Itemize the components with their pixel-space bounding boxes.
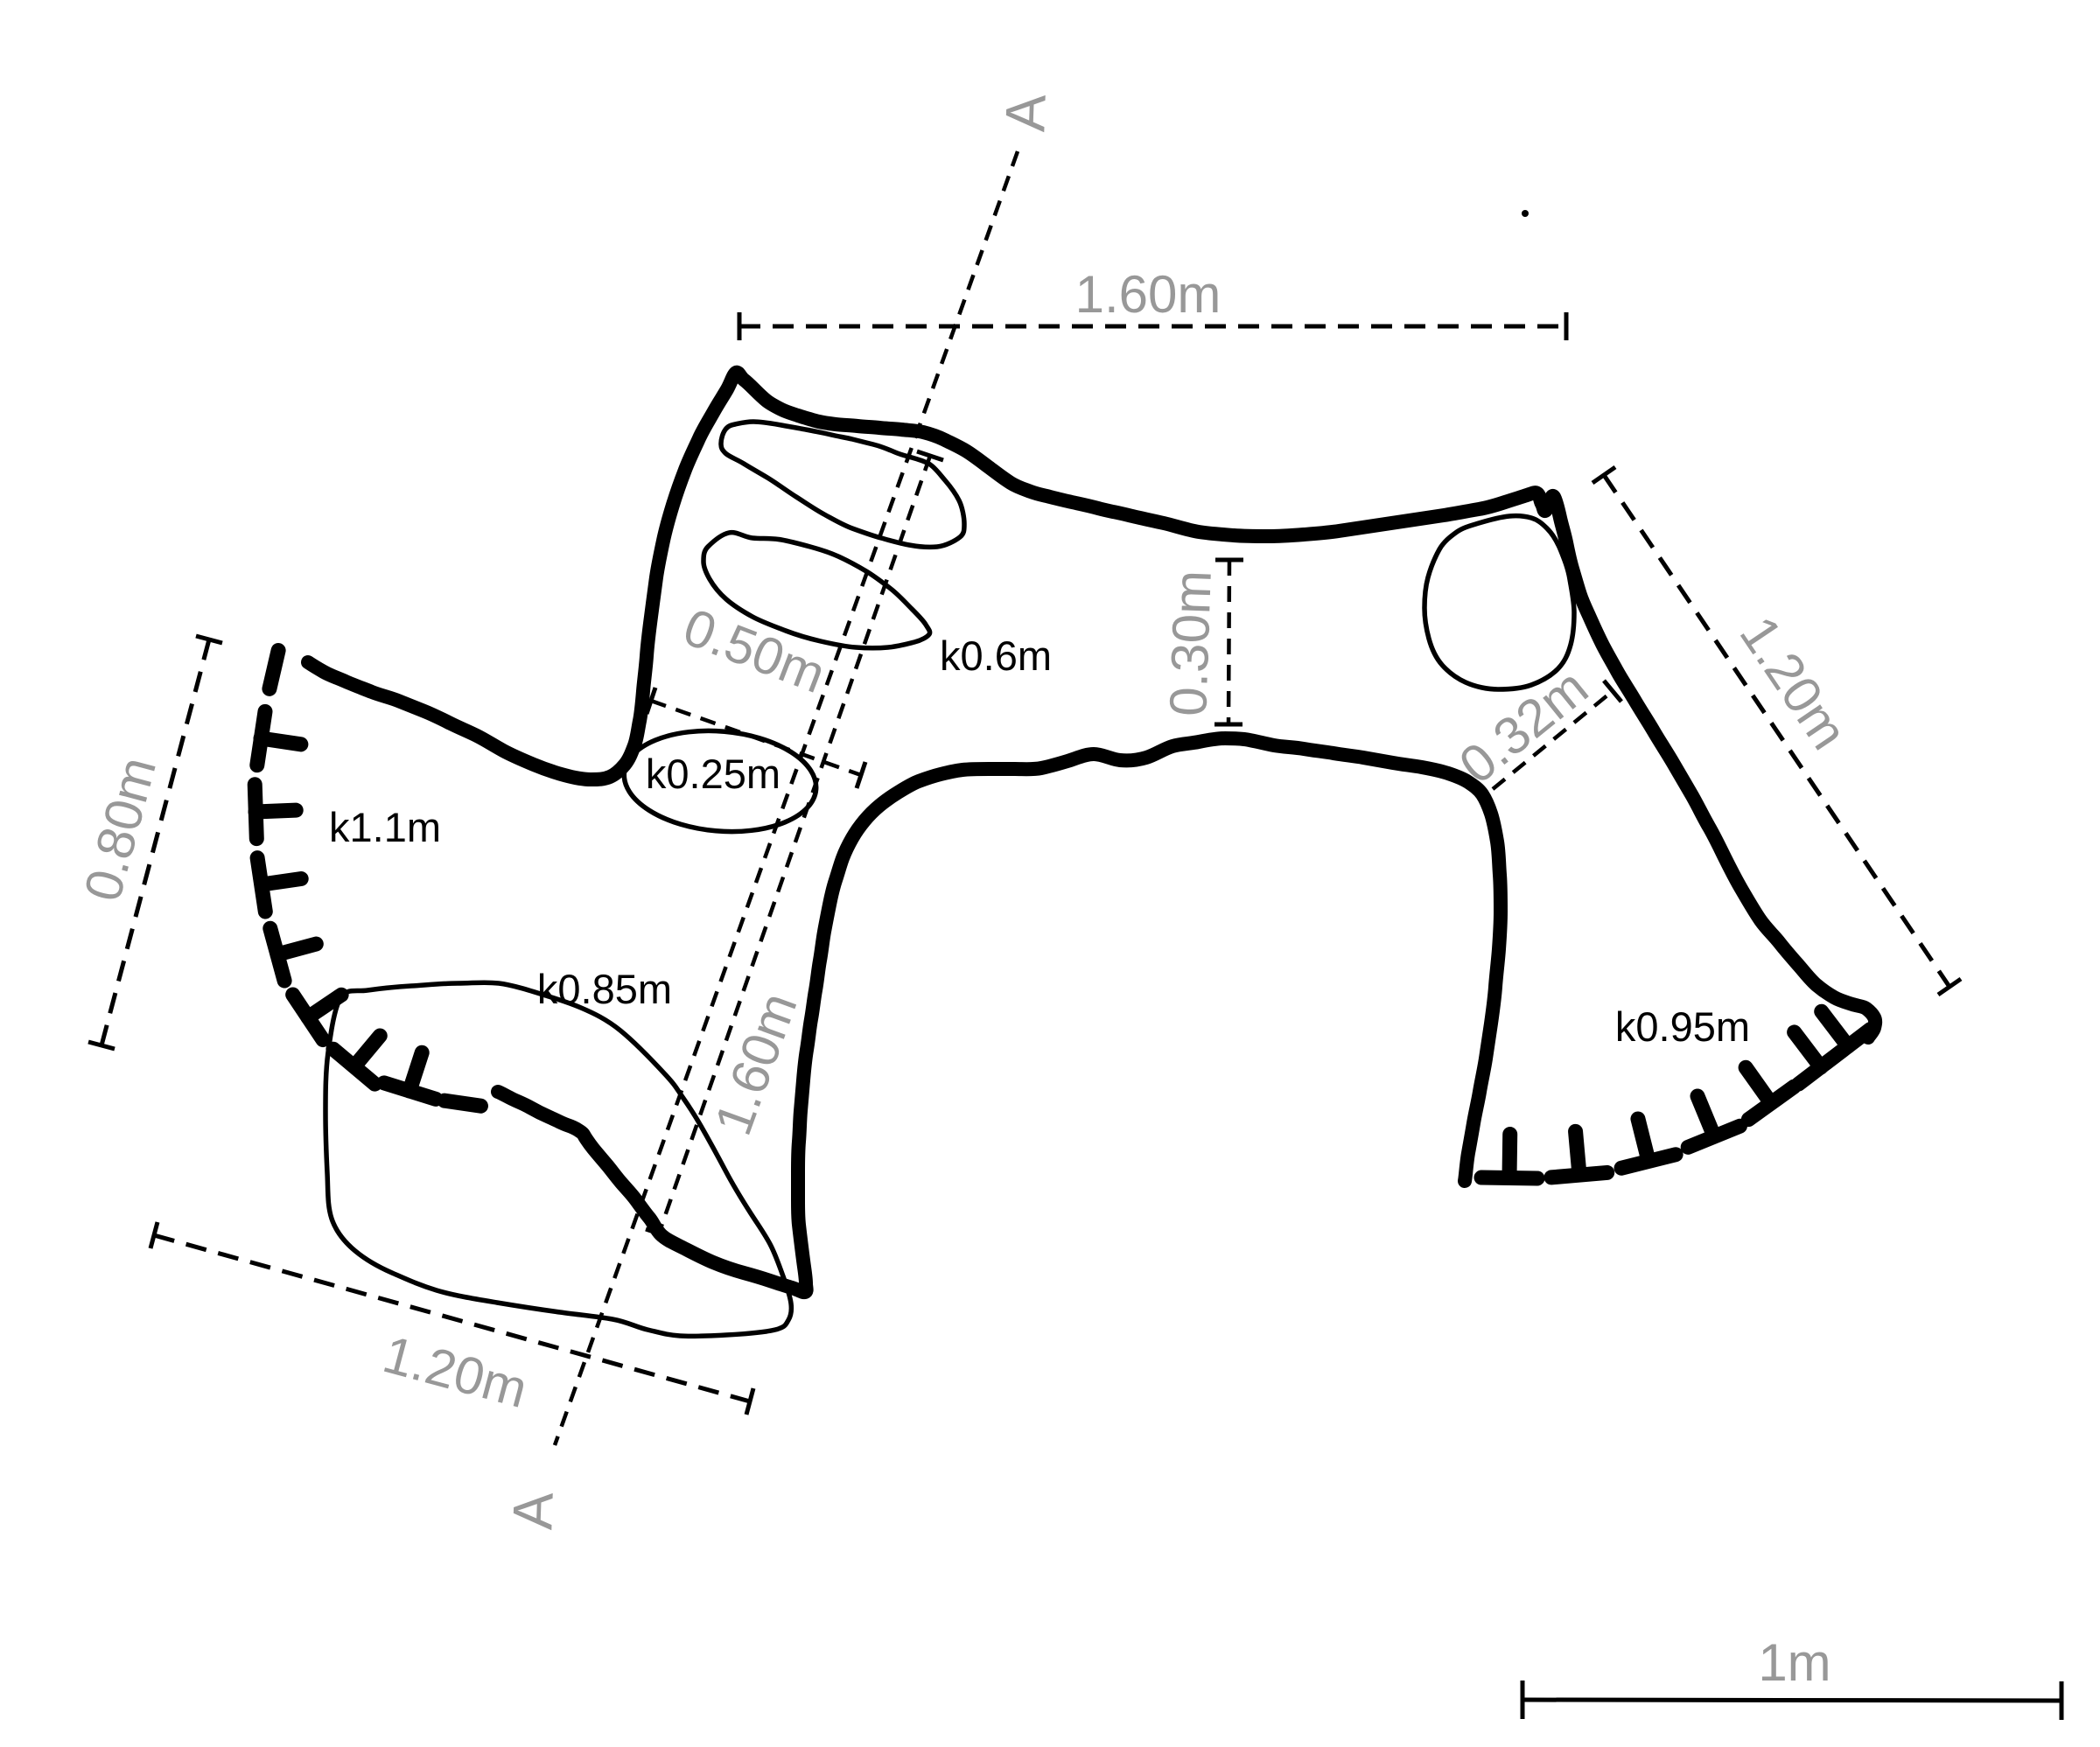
svg-text:k0.25m: k0.25m: [646, 751, 780, 797]
svg-text:A: A: [993, 93, 1057, 132]
svg-text:k1.1m: k1.1m: [329, 804, 441, 850]
svg-text:1.60m: 1.60m: [1075, 265, 1221, 324]
svg-text:k0.85m: k0.85m: [537, 966, 672, 1012]
svg-text:1m: 1m: [1758, 1633, 1830, 1692]
svg-text:k0.6m: k0.6m: [940, 632, 1052, 679]
svg-text:0.30m: 0.30m: [1158, 570, 1222, 717]
svg-text:k0.95m: k0.95m: [1615, 1003, 1750, 1050]
svg-text:A: A: [500, 1491, 564, 1530]
